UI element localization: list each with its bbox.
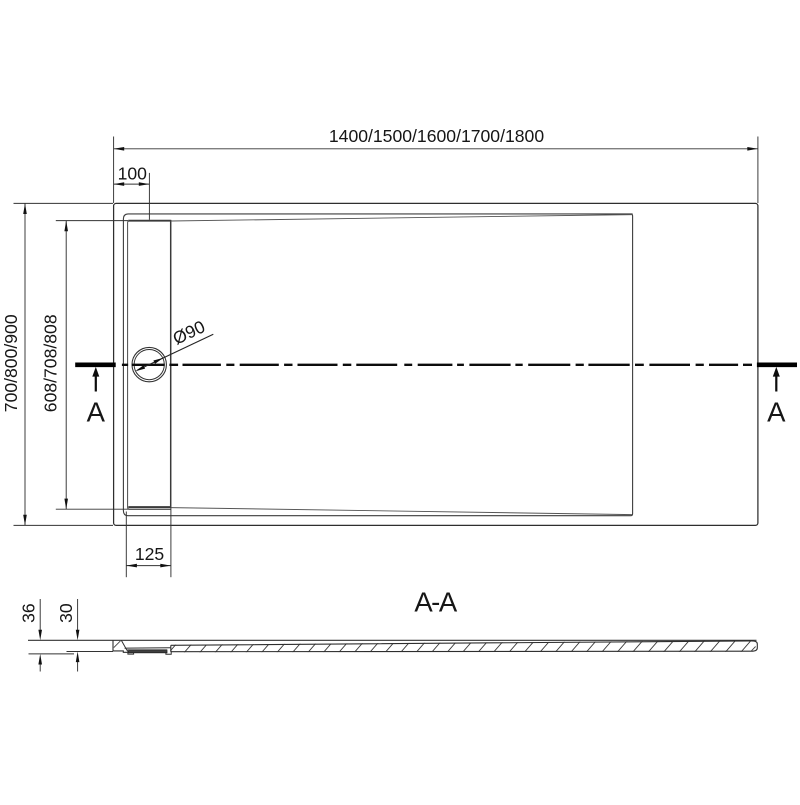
svg-text:30: 30 [56, 603, 76, 623]
svg-text:A: A [87, 397, 106, 428]
svg-text:A: A [767, 397, 786, 428]
svg-text:100: 100 [118, 163, 148, 183]
svg-text:700/800/900: 700/800/900 [1, 314, 21, 412]
svg-text:A-A: A-A [414, 587, 458, 618]
svg-text:1400/1500/1600/1700/1800: 1400/1500/1600/1700/1800 [329, 126, 544, 146]
svg-text:36: 36 [19, 603, 39, 623]
svg-text:608/708/808: 608/708/808 [40, 314, 60, 412]
svg-text:125: 125 [135, 544, 165, 564]
